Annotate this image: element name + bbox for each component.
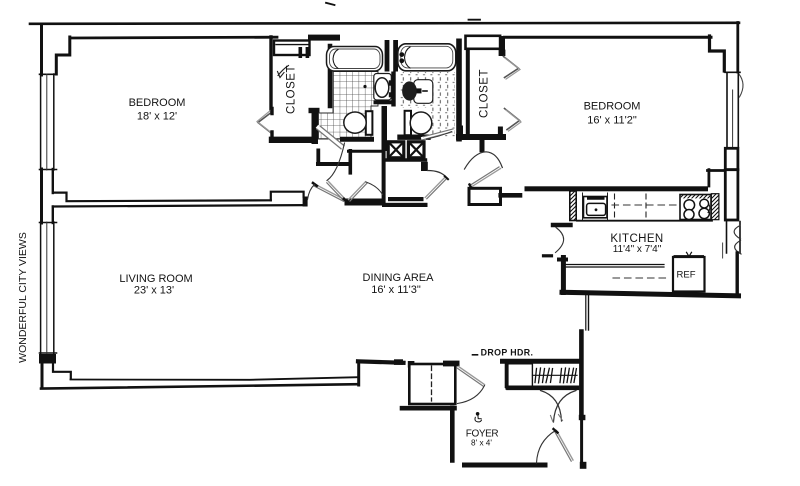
svg-text:LIVING ROOM: LIVING ROOM [119,273,192,285]
svg-text:CLOSET: CLOSET [479,69,491,118]
svg-text:8' x 4': 8' x 4' [471,439,492,448]
svg-text:DROP HDR.: DROP HDR. [481,348,534,358]
svg-text:18' x 12': 18' x 12' [137,111,177,123]
svg-text:WONDERFUL CITY VIEWS: WONDERFUL CITY VIEWS [17,232,29,363]
svg-text:11'4" x 7'4": 11'4" x 7'4" [613,244,662,255]
svg-text:16' x 11'3": 16' x 11'3" [371,284,421,296]
svg-text:DINING AREA: DINING AREA [363,272,435,284]
svg-text:CLOSET: CLOSET [286,65,298,114]
svg-text:BEDROOM: BEDROOM [129,97,186,109]
svg-text:23' x 13': 23' x 13' [134,285,174,297]
svg-text:16' x 11'2": 16' x 11'2" [587,115,637,127]
svg-text:BEDROOM: BEDROOM [584,101,641,113]
svg-text:REF: REF [677,270,696,281]
